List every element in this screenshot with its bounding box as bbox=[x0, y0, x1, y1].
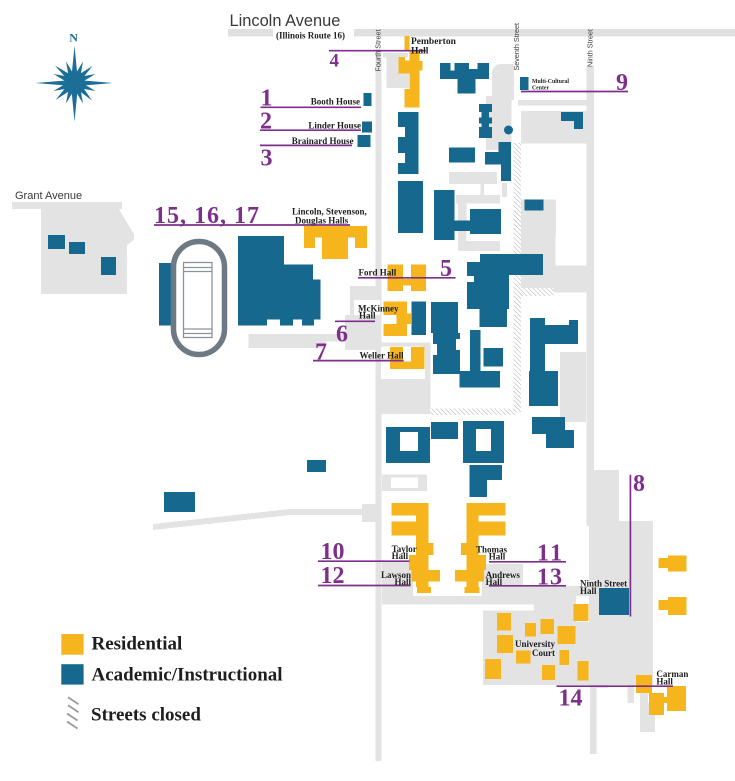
svg-text:Pemberton: Pemberton bbox=[411, 37, 457, 47]
svg-text:Hall: Hall bbox=[392, 551, 409, 561]
svg-text:3: 3 bbox=[261, 146, 273, 172]
svg-text:Seventh Street: Seventh Street bbox=[512, 23, 521, 71]
svg-text:Hall: Hall bbox=[656, 677, 673, 687]
svg-text:7: 7 bbox=[315, 340, 327, 366]
svg-text:Brainard House: Brainard House bbox=[292, 136, 354, 146]
svg-text:Lincoln Avenue: Lincoln Avenue bbox=[230, 12, 341, 30]
svg-text:Academic/Instructional: Academic/Instructional bbox=[92, 665, 283, 686]
svg-text:Ford Hall: Ford Hall bbox=[359, 268, 397, 278]
svg-text:Multi-Cultural: Multi-Cultural bbox=[532, 79, 569, 85]
svg-text:Grant Avenue: Grant Avenue bbox=[15, 190, 82, 202]
svg-text:Hall: Hall bbox=[411, 47, 429, 57]
svg-text:Linder House: Linder House bbox=[308, 121, 361, 131]
svg-text:6: 6 bbox=[336, 322, 348, 348]
svg-text:Hall: Hall bbox=[486, 577, 503, 587]
svg-text:Douglas Halls: Douglas Halls bbox=[295, 216, 349, 226]
svg-text:Hall: Hall bbox=[394, 577, 411, 587]
svg-text:N: N bbox=[69, 31, 78, 45]
svg-text:Hall: Hall bbox=[359, 311, 376, 321]
svg-text:8: 8 bbox=[633, 471, 645, 497]
svg-text:Hall: Hall bbox=[489, 552, 506, 562]
svg-text:Center: Center bbox=[532, 86, 549, 92]
svg-text:Streets closed: Streets closed bbox=[91, 705, 201, 726]
svg-text:Court: Court bbox=[532, 648, 555, 658]
svg-text:4: 4 bbox=[330, 51, 340, 72]
svg-text:Hall: Hall bbox=[580, 586, 597, 596]
svg-text:Ninth Street: Ninth Street bbox=[586, 29, 595, 67]
svg-text:Booth House: Booth House bbox=[311, 97, 360, 107]
svg-text:(Illinois Route 16): (Illinois Route 16) bbox=[276, 31, 345, 41]
svg-text:Residential: Residential bbox=[92, 634, 183, 655]
svg-text:14: 14 bbox=[559, 686, 583, 712]
svg-text:Weller Hall: Weller Hall bbox=[360, 351, 405, 361]
